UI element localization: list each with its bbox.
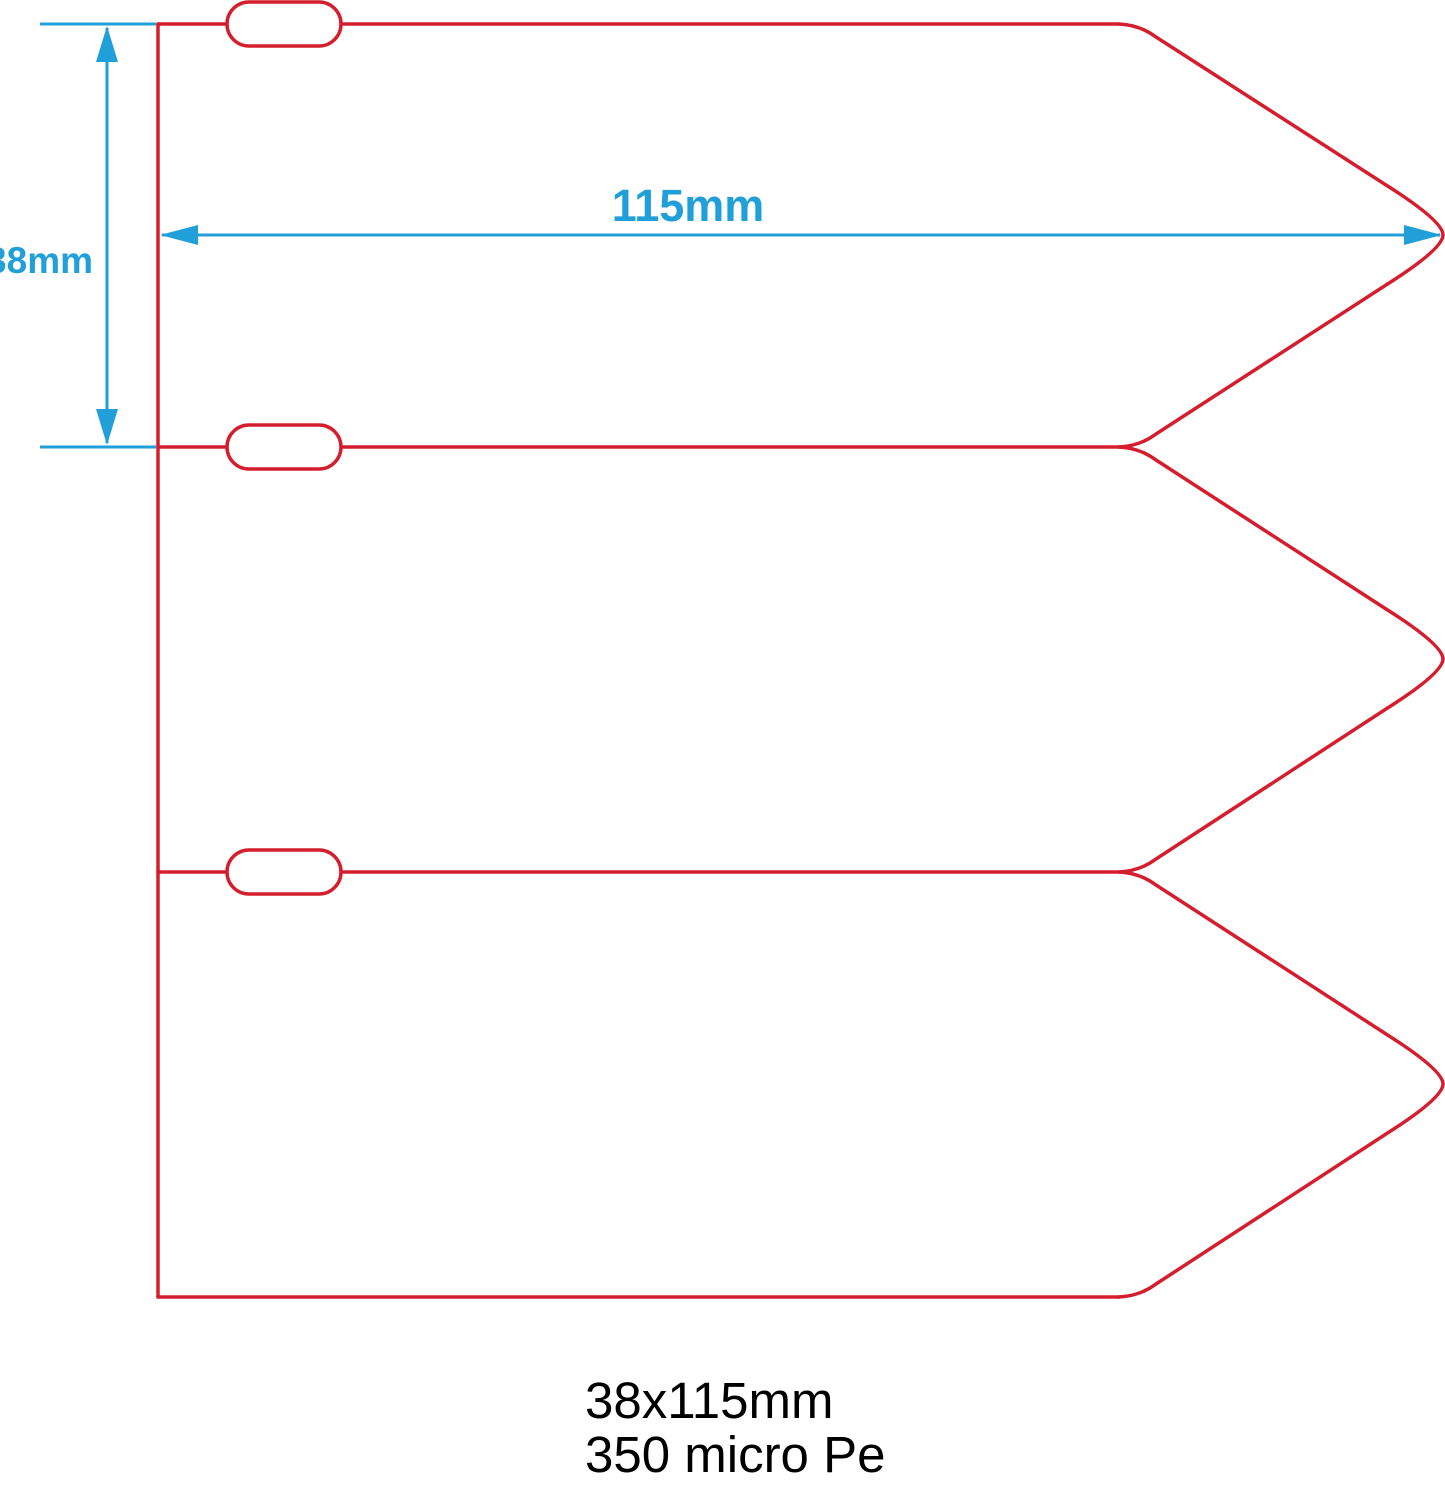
hanging-slot-1 xyxy=(227,2,341,46)
tag3-point xyxy=(1119,872,1443,1297)
width-dimension-label: 115mm xyxy=(612,180,765,231)
arrowhead-left-icon xyxy=(160,225,198,245)
caption-size: 38x115mm xyxy=(585,1372,834,1429)
width-dimension: 115mm xyxy=(160,180,1442,245)
height-dimension-label: 38mm xyxy=(0,240,93,281)
height-dimension: 38mm xyxy=(0,24,156,447)
caption-group: 38x115mm 350 micro Pe xyxy=(585,1372,885,1483)
height-dimension-label-group: 38mm xyxy=(0,240,93,281)
tag2-point xyxy=(1119,447,1443,872)
tag-outlines xyxy=(158,2,1443,1297)
width-dimension-label-group: 115mm xyxy=(612,180,765,231)
arrowhead-down-icon xyxy=(96,409,118,445)
hanging-slot-2 xyxy=(227,425,341,469)
caption-material: 350 micro Pe xyxy=(585,1426,885,1483)
dieline-drawing: 115mm 38mm 38x115mm 350 micro Pe xyxy=(0,0,1445,1488)
tag-dieline-svg: 115mm 38mm 38x115mm 350 micro Pe xyxy=(0,0,1445,1488)
arrowhead-right-icon xyxy=(1404,225,1442,245)
height-dimension-lines-group xyxy=(40,24,156,447)
hanging-slot-3 xyxy=(227,850,341,894)
arrowhead-up-icon xyxy=(96,26,118,62)
